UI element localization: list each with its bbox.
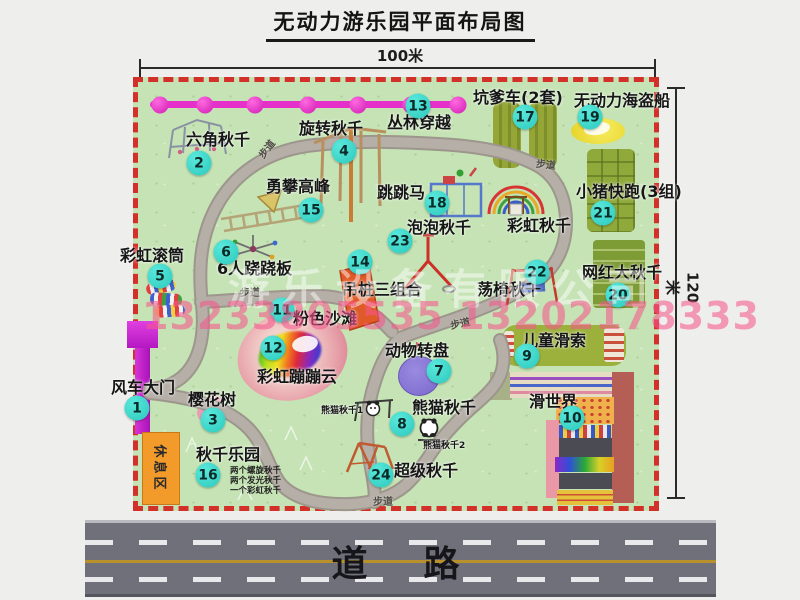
attraction-badge-7: 7 — [427, 359, 452, 384]
attraction-badge-5: 5 — [148, 264, 173, 289]
attraction-badge-18: 18 — [425, 191, 450, 216]
swing-park-notes: 两个螺旋秋千两个发光秋千一个彩虹秋千 — [230, 466, 281, 496]
path-label: 步道 — [254, 136, 278, 161]
attraction-badge-9: 9 — [515, 344, 540, 369]
attraction-label-5: 彩虹滚筒 — [120, 248, 184, 265]
attraction-badge-23: 23 — [388, 229, 413, 254]
attraction-label-2: 六角秋千 — [186, 132, 250, 149]
extra-label: 熊猫秋千2 — [423, 442, 465, 451]
extra-label: 彩虹秋千 — [507, 218, 571, 235]
attraction-badge-17: 17 — [513, 105, 538, 130]
attraction-label-7: 动物转盘 — [385, 343, 449, 360]
attraction-badge-8: 8 — [390, 412, 415, 437]
attraction-label-15: 勇攀高峰 — [266, 179, 330, 196]
path-label: 步道 — [535, 155, 556, 172]
attraction-badge-1: 1 — [125, 396, 150, 421]
park-layout-screenshot: 无动力游乐园平面布局图 100米 120米 休息区 — [0, 0, 800, 600]
attraction-label-1: 风车大门 — [111, 380, 175, 397]
attraction-label-4: 旋转秋千 — [299, 121, 363, 138]
attraction-label-23: 泡泡秋千 — [407, 220, 471, 237]
phone-watermark: 13233805535 13202178333 — [142, 294, 760, 338]
extra-label: 熊猫秋千1 — [321, 407, 363, 416]
attraction-label-21: 小猪快跑(3组) — [576, 184, 682, 201]
attraction-badge-4: 4 — [332, 139, 357, 164]
attraction-badge-3: 3 — [201, 408, 226, 433]
attraction-label-24: 超级秋千 — [394, 463, 458, 480]
path-label: 步道 — [373, 493, 393, 508]
attraction-badge-21: 21 — [591, 201, 616, 226]
attraction-label-12: 彩虹蹦蹦云 — [257, 369, 337, 386]
attraction-label-8: 熊猫秋千 — [412, 400, 476, 417]
swing-park-note: 一个彩虹秋千 — [230, 486, 281, 496]
swing-park-note: 两个发光秋千 — [230, 476, 281, 486]
attraction-badge-16: 16 — [196, 463, 221, 488]
attraction-badge-19: 19 — [578, 105, 603, 130]
attraction-label-3: 樱花树 — [188, 392, 236, 409]
attraction-badge-15: 15 — [299, 198, 324, 223]
attraction-badge-2: 2 — [187, 151, 212, 176]
attraction-badge-13: 13 — [406, 94, 431, 119]
attraction-label-17: 坑爹车(2套) — [473, 90, 563, 107]
attraction-label-18: 跳跳马 — [377, 185, 425, 202]
attraction-badge-10: 10 — [560, 406, 585, 431]
attraction-label-16: 秋千乐园 — [196, 447, 260, 464]
swing-park-note: 两个螺旋秋千 — [230, 466, 281, 476]
attraction-badge-24: 24 — [369, 463, 394, 488]
attraction-badge-12: 12 — [261, 336, 286, 361]
